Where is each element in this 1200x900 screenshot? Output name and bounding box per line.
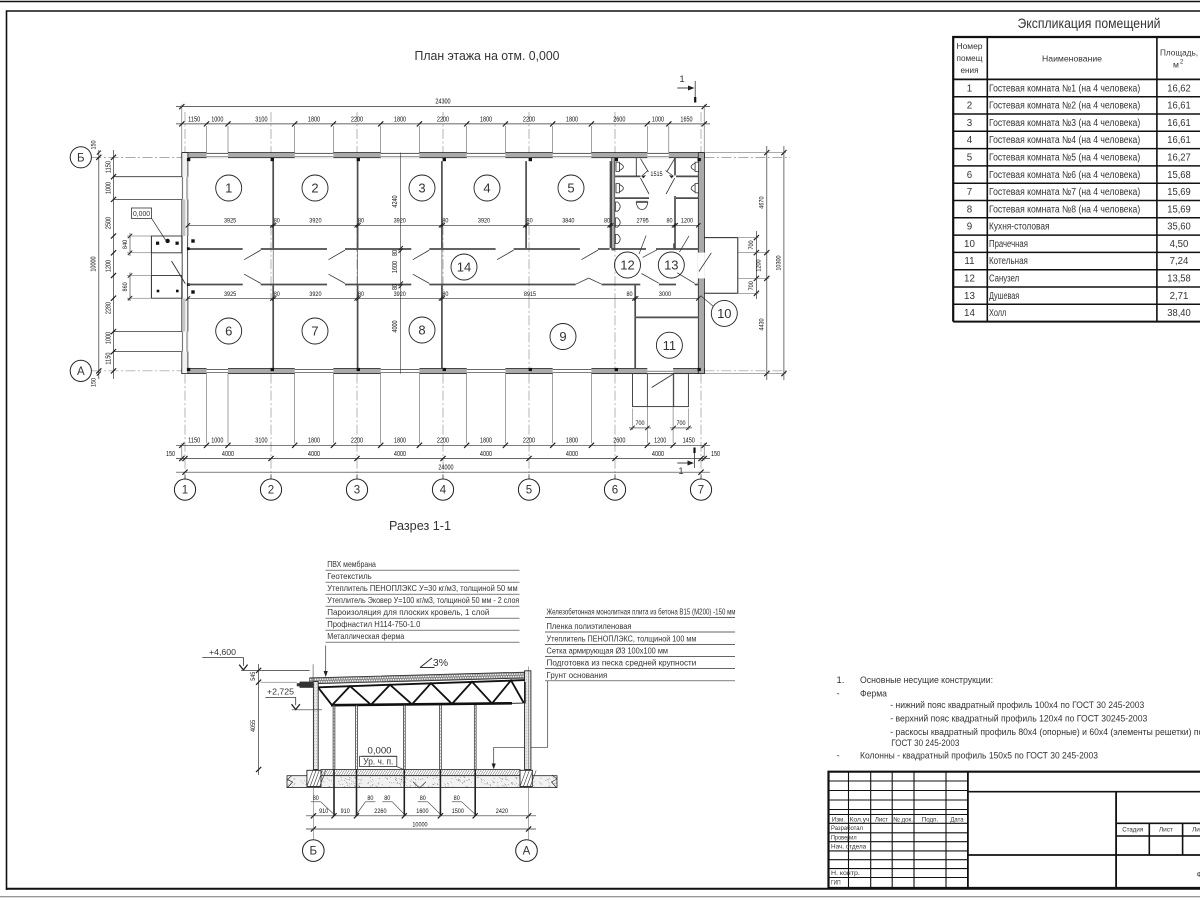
svg-text:1.: 1. <box>837 674 845 685</box>
svg-text:4: 4 <box>440 485 447 497</box>
svg-text:1800: 1800 <box>394 116 406 123</box>
svg-text:80: 80 <box>454 795 460 802</box>
svg-text:80: 80 <box>384 795 390 802</box>
svg-text:Пленка полиэтиленовая: Пленка полиэтиленовая <box>547 621 632 631</box>
svg-text:Номер: Номер <box>957 42 983 51</box>
svg-text:-: - <box>837 687 840 698</box>
svg-text:7: 7 <box>698 485 704 497</box>
svg-text:1150: 1150 <box>105 352 112 364</box>
svg-text:+4,600: +4,600 <box>209 647 236 657</box>
svg-text:4000: 4000 <box>308 451 320 458</box>
svg-text:0,000: 0,000 <box>133 209 150 218</box>
svg-text:Подп.: Подп. <box>922 816 939 823</box>
svg-text:А: А <box>77 366 85 378</box>
svg-text:1: 1 <box>679 74 684 85</box>
svg-text:16,61: 16,61 <box>1167 135 1191 146</box>
svg-text:Геотекстиль: Геотекстиль <box>327 571 372 581</box>
svg-text:80: 80 <box>604 218 610 225</box>
svg-text:А: А <box>523 846 531 858</box>
svg-text:2280: 2280 <box>105 302 112 314</box>
svg-text:Железобетонная монолитная плит: Железобетонная монолитная плита из бетон… <box>547 607 736 617</box>
svg-text:Профнастил Н114-750-1.0: Профнастил Н114-750-1.0 <box>327 619 420 629</box>
svg-text:1800: 1800 <box>394 438 406 445</box>
svg-text:Наименование: Наименование <box>1042 54 1102 64</box>
svg-text:2: 2 <box>268 485 274 497</box>
svg-text:Гостевая комната №6 (на 4 чело: Гостевая комната №6 (на 4 человека) <box>989 170 1140 181</box>
svg-text:80: 80 <box>442 218 448 225</box>
svg-text:3000: 3000 <box>659 291 671 298</box>
svg-text:80: 80 <box>420 795 426 802</box>
svg-text:80: 80 <box>367 795 373 802</box>
svg-text:1: 1 <box>182 485 188 497</box>
svg-text:4000: 4000 <box>480 451 492 458</box>
svg-text:4000: 4000 <box>392 320 399 332</box>
svg-text:2,71: 2,71 <box>1170 291 1189 302</box>
svg-text:80: 80 <box>274 218 280 225</box>
svg-text:3100: 3100 <box>255 116 267 123</box>
svg-text:9: 9 <box>967 222 972 233</box>
svg-text:2200: 2200 <box>523 116 535 123</box>
svg-text:1800: 1800 <box>566 438 578 445</box>
svg-text:13: 13 <box>664 258 678 273</box>
svg-text:2: 2 <box>311 181 318 196</box>
svg-text:13: 13 <box>964 291 975 302</box>
svg-text:3100: 3100 <box>255 438 267 445</box>
svg-text:9: 9 <box>559 329 566 344</box>
svg-text:3920: 3920 <box>478 218 490 225</box>
svg-text:1800: 1800 <box>308 116 320 123</box>
svg-text:- верхний пояс квадратный проф: - верхний пояс квадратный профиль 120х4 … <box>890 713 1147 724</box>
svg-text:80: 80 <box>442 291 448 298</box>
svg-text:14: 14 <box>964 308 975 319</box>
svg-text:7,24: 7,24 <box>1170 256 1189 267</box>
svg-text:Гостевая комната №2 (на 4 чело: Гостевая комната №2 (на 4 человека) <box>989 101 1140 112</box>
svg-text:Котельная: Котельная <box>989 256 1028 267</box>
svg-text:Изм.: Изм. <box>832 816 845 823</box>
svg-text:Экспликация помещений: Экспликация помещений <box>1018 16 1161 31</box>
svg-text:80: 80 <box>358 291 364 298</box>
svg-text:2200: 2200 <box>437 438 449 445</box>
svg-text:1200: 1200 <box>681 218 693 225</box>
svg-text:1500: 1500 <box>452 808 464 815</box>
svg-text:1200: 1200 <box>105 260 112 272</box>
svg-text:6: 6 <box>612 485 618 497</box>
svg-text:ПВХ мембрана: ПВХ мембрана <box>327 559 376 569</box>
svg-text:2200: 2200 <box>437 116 449 123</box>
svg-text:150: 150 <box>90 378 97 387</box>
svg-text:15,69: 15,69 <box>1167 204 1191 215</box>
svg-text:4000: 4000 <box>652 451 664 458</box>
svg-text:840: 840 <box>122 240 129 249</box>
svg-text:910: 910 <box>341 808 350 815</box>
svg-text:Ферма: Ферма <box>860 687 888 698</box>
svg-text:Гостевая комната №5 (на 4 чело: Гостевая комната №5 (на 4 человека) <box>989 153 1140 164</box>
svg-text:Гостевая комната №8 (на 4 чело: Гостевая комната №8 (на 4 человека) <box>989 204 1140 215</box>
svg-text:7: 7 <box>311 324 318 339</box>
svg-text:Санузел: Санузел <box>989 274 1019 285</box>
svg-text:1800: 1800 <box>308 438 320 445</box>
svg-text:860: 860 <box>122 282 129 291</box>
svg-text:Утеплитель Эковер У=100 кг/м3,: Утеплитель Эковер У=100 кг/м3, толщиной … <box>327 595 519 605</box>
svg-text:Разработал: Разработал <box>831 824 863 832</box>
svg-text:Ли: Ли <box>1192 827 1200 834</box>
svg-text:Пароизоляция для плоских крове: Пароизоляция для плоских кровель, 1 слой <box>327 607 489 617</box>
svg-text:№ док.: № док. <box>893 816 913 823</box>
svg-text:1800: 1800 <box>480 438 492 445</box>
svg-text:4,50: 4,50 <box>1170 239 1189 250</box>
svg-text:700: 700 <box>748 240 755 249</box>
svg-text:6: 6 <box>225 324 232 339</box>
svg-text:Утеплитель ПЕНОПЛЭКС, толщиной: Утеплитель ПЕНОПЛЭКС, толщиной 100 мм <box>547 634 697 644</box>
svg-text:4000: 4000 <box>222 451 234 458</box>
svg-text:Стадия: Стадия <box>1122 827 1144 834</box>
svg-text:4670: 4670 <box>759 196 766 208</box>
svg-text:10: 10 <box>964 239 975 250</box>
svg-text:3: 3 <box>967 118 973 129</box>
svg-text:2: 2 <box>967 101 972 112</box>
svg-text:1000: 1000 <box>211 116 223 123</box>
svg-text:5: 5 <box>526 485 532 497</box>
svg-text:12: 12 <box>620 258 634 273</box>
svg-text:Гостевая комната №1 (на 4 чело: Гостевая комната №1 (на 4 человека) <box>989 83 1140 94</box>
svg-text:150: 150 <box>166 451 175 458</box>
svg-text:Колонны - квадратный профиль 1: Колонны - квадратный профиль 150х5 по ГО… <box>860 749 1098 760</box>
svg-text:2500: 2500 <box>105 217 112 229</box>
svg-text:1: 1 <box>678 466 683 477</box>
svg-text:3920: 3920 <box>309 218 321 225</box>
svg-text:- раскосы квадратный профиль 8: - раскосы квадратный профиль 80х4 (опорн… <box>890 726 1200 737</box>
svg-text:8: 8 <box>418 323 425 338</box>
svg-text:1000: 1000 <box>652 116 664 123</box>
svg-text:1650: 1650 <box>680 116 692 123</box>
svg-text:10: 10 <box>717 306 731 321</box>
svg-text:1: 1 <box>225 181 232 196</box>
svg-text:Подготовка из песка средней кр: Подготовка из песка средней крупности <box>547 658 697 668</box>
svg-text:Площадь,: Площадь, <box>1160 48 1198 58</box>
svg-text:8: 8 <box>967 204 973 215</box>
svg-text:1150: 1150 <box>188 438 200 445</box>
svg-text:700: 700 <box>676 420 685 427</box>
svg-text:2200: 2200 <box>351 116 363 123</box>
svg-text:80: 80 <box>666 218 672 225</box>
svg-text:3920: 3920 <box>394 218 406 225</box>
svg-text:80: 80 <box>626 291 632 298</box>
svg-text:16,61: 16,61 <box>1167 101 1191 112</box>
svg-text:3840: 3840 <box>562 218 574 225</box>
svg-text:- нижний пояс квадратный профи: - нижний пояс квадратный профиль 100х4 п… <box>890 699 1144 710</box>
svg-text:6: 6 <box>967 170 973 181</box>
svg-text:4000: 4000 <box>394 451 406 458</box>
svg-text:15,69: 15,69 <box>1167 187 1191 198</box>
svg-text:5: 5 <box>567 181 574 196</box>
svg-text:2260: 2260 <box>374 808 386 815</box>
svg-text:помещ: помещ <box>957 54 983 63</box>
svg-text:80: 80 <box>392 284 399 290</box>
svg-text:Гостевая комната №7 (на 4 чело: Гостевая комната №7 (на 4 человека) <box>989 187 1140 198</box>
svg-text:Дата: Дата <box>950 816 964 823</box>
svg-text:3920: 3920 <box>394 291 406 298</box>
svg-text:Б: Б <box>77 153 85 165</box>
svg-text:Гостевая комната №4 (на 4 чело: Гостевая комната №4 (на 4 человека) <box>989 135 1140 146</box>
svg-text:16,27: 16,27 <box>1167 153 1191 164</box>
svg-text:35,60: 35,60 <box>1167 222 1191 233</box>
svg-text:545: 545 <box>250 671 257 680</box>
svg-text:Холл: Холл <box>989 308 1007 319</box>
svg-text:8915: 8915 <box>524 291 536 298</box>
svg-text:80: 80 <box>358 218 364 225</box>
svg-text:80: 80 <box>527 218 533 225</box>
svg-text:10000: 10000 <box>90 256 97 271</box>
svg-text:700: 700 <box>635 420 644 427</box>
svg-text:Кол.уч: Кол.уч <box>850 816 870 823</box>
svg-text:1200: 1200 <box>755 259 762 271</box>
svg-text:Разрез 1-1: Разрез 1-1 <box>389 518 451 533</box>
svg-text:910: 910 <box>319 808 328 815</box>
svg-text:2200: 2200 <box>523 438 535 445</box>
svg-text:-: - <box>837 749 840 760</box>
svg-text:1150: 1150 <box>188 116 200 123</box>
svg-text:3: 3 <box>418 181 425 196</box>
svg-text:16,61: 16,61 <box>1167 118 1191 129</box>
svg-text:24000: 24000 <box>438 464 453 471</box>
svg-text:13,58: 13,58 <box>1167 274 1191 285</box>
svg-text:24300: 24300 <box>435 99 450 106</box>
svg-text:3925: 3925 <box>224 291 236 298</box>
svg-text:150: 150 <box>90 140 97 149</box>
svg-text:3920: 3920 <box>309 291 321 298</box>
svg-text:150: 150 <box>711 451 720 458</box>
svg-text:1450: 1450 <box>683 438 695 445</box>
svg-text:1: 1 <box>967 83 972 94</box>
svg-text:1000: 1000 <box>211 438 223 445</box>
svg-text:10000: 10000 <box>412 821 427 828</box>
svg-text:4430: 4430 <box>759 318 766 330</box>
svg-text:11: 11 <box>663 338 677 353</box>
svg-text:Прачечная: Прачечная <box>989 239 1028 250</box>
svg-text:Утеплитель ПЕНОПЛЭКС У=30 кг/м: Утеплитель ПЕНОПЛЭКС У=30 кг/м3, толщино… <box>327 583 517 593</box>
svg-text:15,68: 15,68 <box>1167 170 1191 181</box>
svg-text:4055: 4055 <box>250 720 257 732</box>
svg-text:10300: 10300 <box>776 255 783 270</box>
svg-text:Кухня-столовая: Кухня-столовая <box>989 222 1050 233</box>
svg-text:Металлическая ферма: Металлическая ферма <box>327 631 404 641</box>
svg-text:Лист: Лист <box>1159 827 1173 834</box>
svg-text:38,40: 38,40 <box>1167 308 1191 319</box>
svg-text:2600: 2600 <box>613 438 625 445</box>
svg-text:ГОСТ 30 245-2003: ГОСТ 30 245-2003 <box>891 737 959 748</box>
svg-text:1000: 1000 <box>105 332 112 344</box>
svg-text:80: 80 <box>313 795 319 802</box>
svg-text:ения: ения <box>961 66 979 75</box>
svg-text:3%: 3% <box>433 657 448 669</box>
svg-text:+2,725: +2,725 <box>267 687 294 697</box>
svg-text:1000: 1000 <box>105 182 112 194</box>
svg-text:Н. контр.: Н. контр. <box>831 870 860 877</box>
svg-text:7: 7 <box>967 187 972 198</box>
svg-text:3925: 3925 <box>224 218 236 225</box>
svg-text:1150: 1150 <box>105 161 112 173</box>
svg-text:Основные несущие конструкции:: Основные несущие конструкции: <box>860 674 993 685</box>
svg-text:Гостевая комната №3 (на 4 чело: Гостевая комната №3 (на 4 человека) <box>989 118 1140 129</box>
svg-text:4000: 4000 <box>566 451 578 458</box>
svg-text:4240: 4240 <box>392 195 399 207</box>
svg-text:1800: 1800 <box>566 116 578 123</box>
svg-text:2600: 2600 <box>613 116 625 123</box>
svg-text:Ур. ч. п.: Ур. ч. п. <box>363 757 393 767</box>
svg-text:Б: Б <box>310 846 318 858</box>
svg-text:4: 4 <box>967 135 973 146</box>
svg-text:1600: 1600 <box>416 808 428 815</box>
svg-text:0,000: 0,000 <box>368 746 392 756</box>
svg-text:16,62: 16,62 <box>1167 83 1191 94</box>
svg-text:12: 12 <box>964 274 975 285</box>
svg-text:м: м <box>1173 60 1179 70</box>
svg-text:80: 80 <box>274 291 280 298</box>
svg-text:2795: 2795 <box>637 218 649 225</box>
svg-text:Нач. отдела: Нач. отдела <box>831 844 867 851</box>
svg-text:11: 11 <box>964 256 974 267</box>
svg-text:2200: 2200 <box>351 438 363 445</box>
svg-text:700: 700 <box>748 281 755 290</box>
svg-text:План этажа на отм. 0,000: План этажа на отм. 0,000 <box>415 48 560 63</box>
svg-text:Грунт основания: Грунт основания <box>547 670 608 680</box>
svg-text:3: 3 <box>354 485 360 497</box>
svg-text:4: 4 <box>483 181 490 196</box>
svg-text:Сетка армирующая Ø3 100х100 мм: Сетка армирующая Ø3 100х100 мм <box>547 646 669 656</box>
svg-text:1200: 1200 <box>654 438 666 445</box>
svg-text:1800: 1800 <box>480 116 492 123</box>
svg-text:14: 14 <box>457 260 471 275</box>
svg-text:Формат: Формат <box>1197 872 1200 879</box>
svg-text:2420: 2420 <box>496 808 508 815</box>
svg-text:1600: 1600 <box>392 261 399 273</box>
svg-text:ГИП: ГИП <box>831 880 841 887</box>
svg-text:Душевая: Душевая <box>989 291 1019 302</box>
svg-text:5: 5 <box>967 153 973 164</box>
svg-text:1515: 1515 <box>650 171 662 178</box>
svg-text:Лист: Лист <box>875 816 888 823</box>
svg-text:80: 80 <box>392 250 399 256</box>
svg-text:Проверил: Проверил <box>831 834 857 841</box>
